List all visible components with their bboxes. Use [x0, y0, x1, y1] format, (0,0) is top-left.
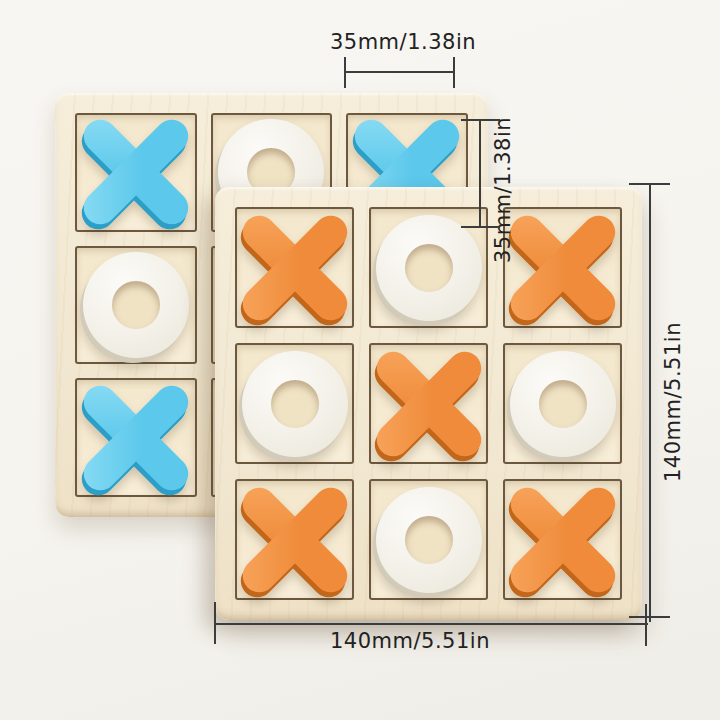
board-cell — [503, 207, 622, 328]
o-piece — [83, 252, 189, 358]
x-piece — [86, 122, 186, 222]
board-cell — [369, 343, 488, 464]
board-cell — [235, 479, 354, 600]
dimension-label-board-height: 140mm/5.51in — [661, 322, 685, 482]
board-cell — [235, 207, 354, 328]
board-cell — [235, 343, 354, 464]
board-cell — [75, 378, 197, 497]
x-piece — [245, 490, 345, 590]
o-piece — [376, 215, 482, 321]
x-piece — [379, 354, 479, 454]
o-piece — [242, 351, 348, 457]
dim-tick — [453, 57, 455, 88]
x-piece — [86, 388, 186, 488]
board-cell — [75, 246, 197, 365]
dimension-label-board-width: 140mm/5.51in — [310, 629, 510, 653]
dim-tick — [629, 183, 670, 185]
o-piece — [376, 487, 482, 593]
product-photo: 35mm/1.38in 35mm/1.38in 140mm/5.51in 140… — [0, 0, 720, 720]
dim-line-top — [345, 71, 455, 73]
board-cell — [369, 207, 488, 328]
board-cell — [369, 479, 488, 600]
o-piece — [510, 351, 616, 457]
x-piece — [513, 218, 613, 318]
board-cell — [503, 343, 622, 464]
dim-tick — [645, 604, 647, 646]
x-piece — [245, 218, 345, 318]
dim-line-bottom — [215, 623, 648, 625]
dim-line-right — [649, 184, 651, 622]
board-cell — [75, 113, 197, 232]
front-board — [215, 187, 642, 620]
dim-tick — [344, 57, 346, 88]
dimension-label-cell-width: 35mm/1.38in — [303, 30, 503, 54]
board-cell — [503, 479, 622, 600]
x-piece — [513, 490, 613, 590]
